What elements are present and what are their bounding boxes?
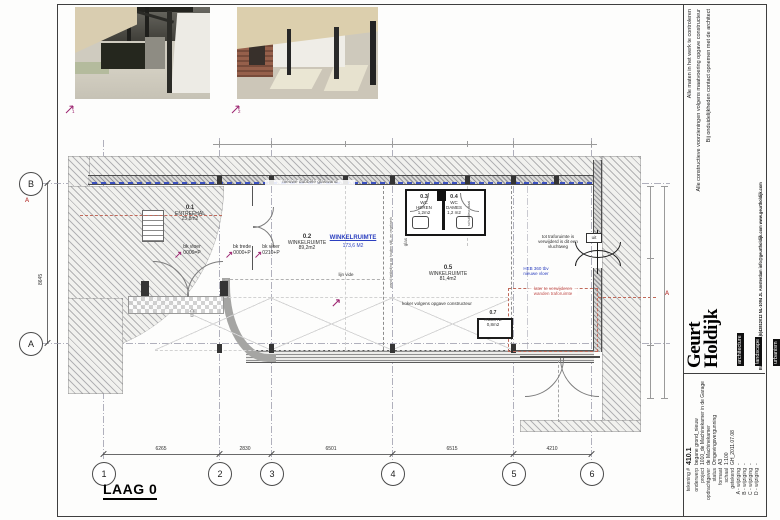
- entrance-post: [141, 281, 149, 296]
- existing-wall-bottom-right: [520, 420, 641, 432]
- right-dim-tick: [647, 186, 654, 187]
- level-marker: [254, 250, 263, 259]
- column: [269, 344, 274, 353]
- logo-line-2: Holdijk: [703, 309, 720, 368]
- bottom-right-wall: [520, 356, 600, 358]
- column: [465, 176, 470, 184]
- grid-bubble-3: 3: [260, 462, 284, 486]
- grid-bubble-A: A: [19, 332, 43, 356]
- dim-A-B: 8645: [38, 245, 44, 285]
- render-shard: [171, 13, 210, 93]
- section-line-right: [598, 297, 656, 298]
- grid-bubble-5: 5: [502, 462, 526, 486]
- top-dim-tick: [591, 141, 592, 147]
- existing-wall-right: [602, 156, 641, 432]
- duct-note: koker volgens opgave constructeur: [397, 301, 477, 306]
- logo-tag: architecture: [737, 333, 744, 366]
- field-value: 410.1: [686, 447, 694, 465]
- column: [217, 344, 222, 353]
- top-dim-tick: [219, 141, 220, 147]
- left-dim-line: [47, 183, 48, 343]
- camera-marker-number: 2: [238, 109, 241, 114]
- render-shard: [334, 27, 339, 79]
- dim-5-6: 4210: [522, 447, 582, 453]
- right-dim-tick: [647, 345, 654, 346]
- existing-wall-top: [88, 156, 602, 176]
- field-value: GH_2011.07.08: [730, 430, 736, 465]
- glass-wall-note: nieuwe dubbele glaswand: [265, 180, 355, 185]
- drawing-title: LAAG 0: [103, 481, 157, 500]
- render-shard: [101, 43, 145, 69]
- room-0-7-label: 0.7 RUIMTE 0,8m2: [477, 311, 509, 327]
- right-inner-wall-upper: [593, 160, 602, 236]
- drawing-sheet: 1 2: [0, 0, 780, 520]
- heb-beam-note: HEB 360 tbv nieuwe vloer: [516, 266, 556, 276]
- top-dim-tick: [345, 141, 346, 147]
- dim-2-3: 2830: [215, 447, 275, 453]
- grid-bubble-6: 6: [580, 462, 604, 486]
- right-dim-tick: [661, 398, 668, 399]
- camera-marker-1: 1: [64, 103, 76, 115]
- render-photo-2: [237, 7, 378, 99]
- existing-wall-left-stem: [68, 298, 123, 394]
- grid-bubble-B: B: [19, 172, 43, 196]
- column: [554, 176, 559, 184]
- field-value: Omgevingsvergunning: [712, 415, 718, 465]
- dim-3-4: 6501: [301, 447, 361, 453]
- logo-tag: urbanism: [773, 339, 780, 366]
- grid-bubble-4: 4: [381, 462, 405, 486]
- trafo-note: later te verwijderen wanden traforuimte: [529, 286, 577, 296]
- field-label: tekening #: [686, 468, 694, 514]
- column: [511, 176, 516, 184]
- vide-line: [225, 279, 385, 280]
- top-dim-tick: [392, 141, 393, 147]
- titleblock-logo-zone: Geurt Holdijk architecture landscape urb…: [684, 180, 764, 372]
- render-shard: [167, 11, 172, 93]
- partition-entreehal: [252, 186, 253, 206]
- dim-4-5: 6515: [422, 447, 482, 453]
- level-marker: [174, 250, 183, 259]
- exit-label: uit: [592, 235, 597, 240]
- titleblock-fields-zone: tekening #410.1 onderwerpbegane grond_ni…: [684, 376, 764, 514]
- room-0-3-label: 0.3 WC HEREN 1,2m2: [410, 194, 438, 215]
- camera-marker-number: 1: [72, 109, 75, 114]
- right-dim-line: [650, 186, 651, 398]
- exit-label-box: uit: [586, 233, 602, 243]
- field-value: -: [754, 463, 760, 465]
- level-marker: [225, 250, 234, 259]
- right-dim-tick: [661, 186, 668, 187]
- render-shard: [145, 37, 165, 69]
- room-0-1-label: 0.1 ENTREEHAL 25,8m2: [165, 205, 215, 223]
- render-photo-1: [75, 7, 210, 99]
- toilet-fixture: [412, 216, 429, 229]
- top-dim-tick: [271, 141, 272, 147]
- titleblock-divider-rule: [683, 373, 765, 374]
- render-shard: [287, 29, 291, 75]
- existing-wall-left-top: [68, 156, 90, 188]
- room-0-5-label: 0.5 WINKELRUIMTE 81,4m2: [421, 265, 475, 283]
- dim-1-2: 6265: [131, 447, 191, 453]
- column: [217, 176, 222, 184]
- escape-route-note: tot traforuimte is verwijderd is dit een…: [536, 234, 580, 249]
- right-dim-line-2: [664, 186, 665, 398]
- render-shard: [370, 21, 376, 85]
- cladding-note: wand bekleding op houten stijl- en regel…: [389, 192, 393, 288]
- room-0-4-label: 0.4 WC DAMES 1,2 m2: [440, 194, 468, 215]
- trafo-room-outline: [508, 288, 598, 352]
- bottom-dim-line: [103, 454, 591, 455]
- column: [390, 176, 395, 184]
- entrance-paving: [128, 296, 224, 314]
- logo: Geurt Holdijk: [686, 309, 721, 368]
- camera-marker-2: 2: [230, 103, 242, 115]
- address-line: Balistraat 16a +31|6|42812012 NL-1094 JL…: [758, 203, 763, 370]
- field-label: D - wijziging: [754, 468, 760, 514]
- top-dim-tick: [467, 141, 468, 147]
- column: [390, 344, 395, 353]
- sliding-door-note: schuifdeur staal: [467, 184, 471, 226]
- room-0-2-label: 0.2 WINKELRUIMTE 89,2m2: [282, 234, 332, 252]
- top-dim-tick: [513, 141, 514, 147]
- right-dim-tick: [647, 398, 654, 399]
- vide-note: lijn vide: [330, 272, 362, 277]
- glass-note: glas: [403, 238, 408, 246]
- north-arrow-icon: ⇧: [186, 308, 198, 320]
- section-marker-A-left: A: [22, 198, 32, 205]
- grid-bubble-2: 2: [208, 462, 232, 486]
- right-dim-tick: [647, 258, 654, 259]
- logo-tags: architecture landscape urbanism: [728, 246, 780, 366]
- camera-marker-plan: [331, 297, 342, 308]
- winkelruimte-blue-label: WINKELRUIMTE 173,6 M2: [326, 235, 380, 249]
- section-line-left: [80, 215, 222, 216]
